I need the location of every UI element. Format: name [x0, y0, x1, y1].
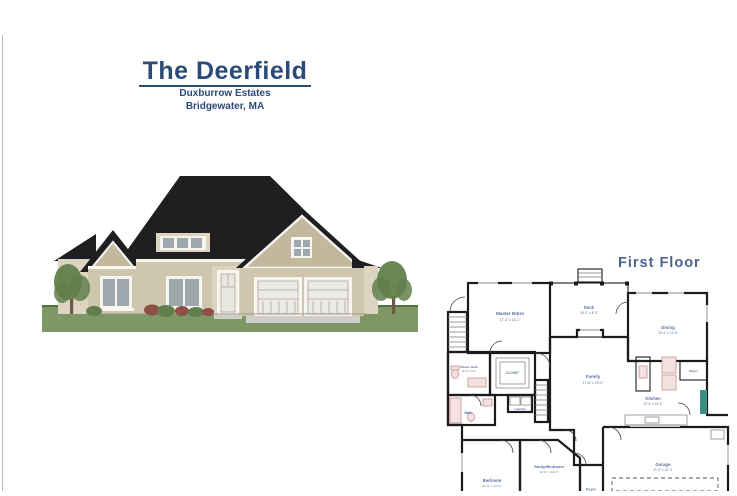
- dims-garage: 21'-0" x 22'-0": [653, 468, 673, 472]
- label-garage: Garage: [655, 462, 671, 467]
- label-bedroom: Bedroom: [483, 478, 502, 483]
- brochure-page: { "document": { "title": "The Deerfield"…: [0, 0, 737, 491]
- dims-study-bedroom: 11'-0" x 12'-0": [540, 470, 559, 474]
- label-study-bedroom: Study/Bedroom: [534, 464, 564, 469]
- garage-door-right: [304, 277, 352, 316]
- left-wing-window: [98, 276, 134, 311]
- foundation-line: [86, 313, 366, 315]
- dims-master-bath: 10'-0" x 6'-0": [462, 369, 477, 373]
- label-closet: CLOSET: [506, 371, 519, 375]
- subtitle-location: Bridgewater, MA: [130, 101, 320, 113]
- label-bath: Bath: [464, 411, 471, 415]
- label-dining: Dining: [661, 325, 675, 330]
- label-family: Family: [586, 374, 601, 379]
- subtitle-estates: Duxburrow Estates: [130, 88, 320, 100]
- title-block: The Deerfield Duxburrow Estates Bridgewa…: [130, 58, 320, 114]
- label-master-bath: Master Bath: [460, 365, 477, 369]
- floor-plan-svg: Master Bdrm 17'-4" x 14'-2" Deck 16'-2" …: [440, 250, 737, 491]
- label-laundry: Laundry: [514, 407, 526, 411]
- dims-dining: 10'-4" x 13'-6": [658, 331, 678, 335]
- dims-master-bdrm: 17'-4" x 14'-2": [500, 318, 522, 322]
- dims-kitchen: 12'-0" x 15'-0": [643, 402, 663, 406]
- page-title: The Deerfield: [139, 58, 312, 87]
- house-elevation-svg: [40, 160, 420, 332]
- kitchen-fixtures: [625, 357, 707, 425]
- house-elevation-rendering: [40, 160, 420, 332]
- first-floor-plan: Master Bdrm 17'-4" x 14'-2" Deck 16'-2" …: [440, 250, 737, 491]
- label-kitchen: Kitchen: [645, 396, 661, 401]
- label-pantry: Pantry: [689, 369, 698, 373]
- label-foyer: Foyer: [586, 488, 596, 492]
- garage-door-left: [254, 277, 302, 316]
- dims-deck: 16'-2" x 8'-0": [580, 311, 598, 315]
- dims-family: 17'-6" x 19'-0": [583, 381, 605, 385]
- dims-bedroom: 11'-0" x 12'-0": [483, 484, 502, 488]
- label-deck: Deck: [584, 305, 595, 310]
- garage-extras: [612, 430, 724, 491]
- front-door: [212, 266, 244, 314]
- page-left-edge-line: [2, 35, 3, 491]
- label-master-bdrm: Master Bdrm: [496, 311, 524, 316]
